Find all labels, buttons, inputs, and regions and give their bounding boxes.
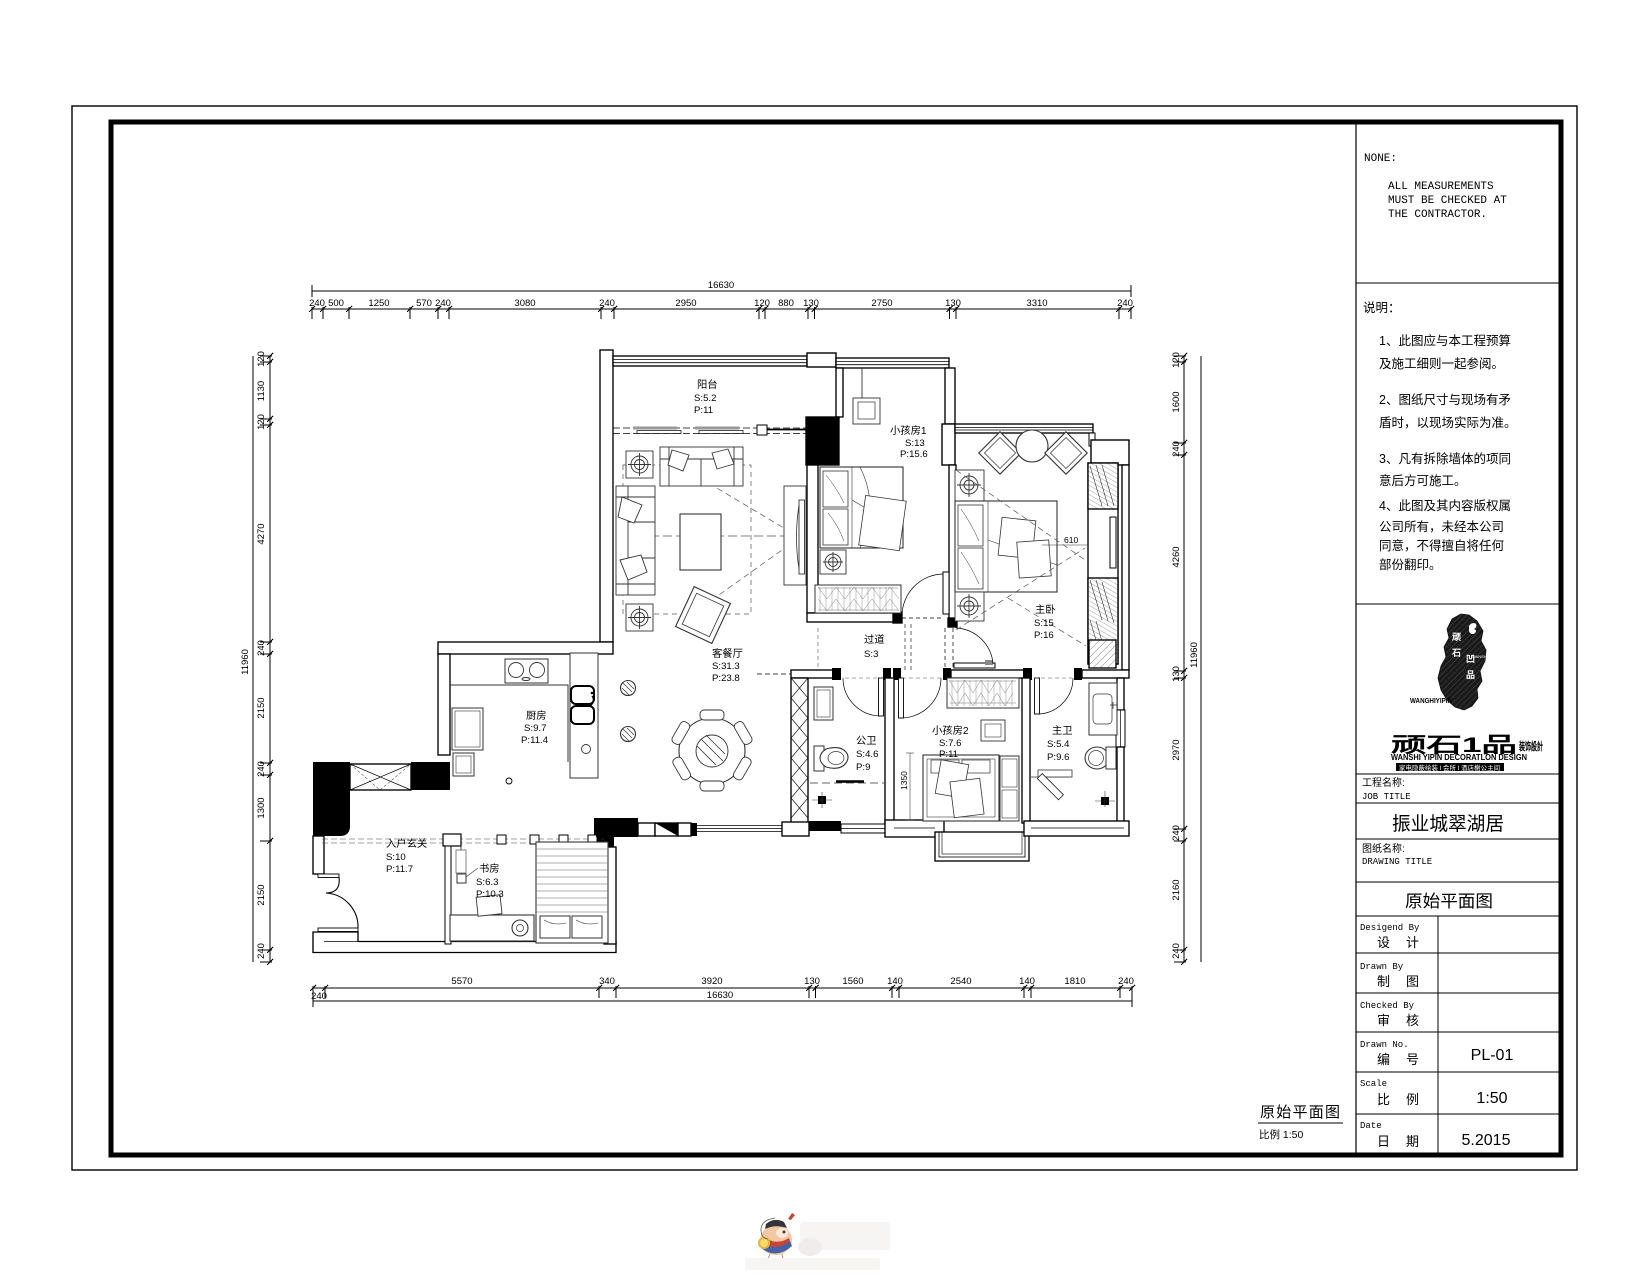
- svg-text:3、凡有拆除墙体的项同: 3、凡有拆除墙体的项同: [1379, 451, 1511, 466]
- svg-text:公卫: 公卫: [856, 735, 877, 747]
- svg-text:4260: 4260: [1171, 546, 1182, 567]
- svg-text:品: 品: [1466, 670, 1475, 680]
- svg-text:130: 130: [1171, 666, 1182, 682]
- svg-text:主卫: 主卫: [1052, 725, 1073, 737]
- svg-text:图纸名称:: 图纸名称:: [1362, 842, 1405, 855]
- svg-text:主卧: 主卧: [1035, 603, 1056, 616]
- svg-text:JOB TITLE: JOB TITLE: [1362, 792, 1411, 802]
- svg-text:4、此图及其内容版权属: 4、此图及其内容版权属: [1379, 498, 1511, 513]
- svg-text:制 图: 制 图: [1377, 974, 1419, 989]
- svg-text:P:9.6: P:9.6: [1047, 752, 1069, 763]
- svg-text:S:4.6: S:4.6: [856, 749, 878, 760]
- svg-text:140: 140: [887, 976, 903, 987]
- svg-text:240: 240: [311, 991, 327, 1002]
- svg-text:340: 340: [599, 976, 615, 987]
- svg-text:240: 240: [256, 943, 267, 959]
- svg-text:1300: 1300: [256, 797, 267, 818]
- svg-text:1350: 1350: [899, 771, 909, 790]
- svg-text:P:23.8: P:23.8: [712, 673, 740, 684]
- svg-text:原始平面图: 原始平面图: [1405, 892, 1493, 911]
- svg-text:3310: 3310: [1026, 298, 1047, 309]
- svg-text:石: 石: [1451, 648, 1461, 658]
- svg-text:MUST BE CHECKED AT: MUST BE CHECKED AT: [1388, 195, 1507, 207]
- svg-text:120: 120: [1171, 352, 1182, 368]
- svg-text:S:5.4: S:5.4: [1047, 739, 1070, 750]
- svg-text:1560: 1560: [842, 976, 863, 987]
- svg-text:4270: 4270: [256, 523, 267, 544]
- svg-text:1、此图应与本工程预算: 1、此图应与本工程预算: [1379, 333, 1511, 348]
- svg-text:S:15: S:15: [1034, 618, 1054, 629]
- svg-text:过道: 过道: [864, 633, 885, 646]
- svg-text:小孩房2: 小孩房2: [932, 724, 969, 737]
- svg-text:1250: 1250: [368, 298, 389, 309]
- svg-text:240: 240: [435, 298, 451, 309]
- svg-text:Drawn By: Drawn By: [1360, 962, 1404, 972]
- svg-text:S:7.6: S:7.6: [939, 738, 961, 749]
- svg-text:S:9.7: S:9.7: [524, 723, 546, 734]
- svg-text:Desigend By: Desigend By: [1360, 923, 1420, 933]
- svg-text:原始平面图: 原始平面图: [1260, 1104, 1340, 1121]
- svg-text:11960: 11960: [1189, 642, 1200, 668]
- svg-text:11960: 11960: [240, 649, 251, 675]
- svg-text:意后方可施工。: 意后方可施工。: [1379, 473, 1467, 488]
- svg-text:工程名称:: 工程名称:: [1362, 776, 1405, 789]
- svg-text:S:10: S:10: [386, 852, 406, 863]
- svg-text:S:31.3: S:31.3: [712, 661, 740, 672]
- svg-text:1810: 1810: [1064, 976, 1085, 987]
- svg-text:PL-01: PL-01: [1471, 1047, 1514, 1064]
- svg-text:THE CONTRACTOR.: THE CONTRACTOR.: [1388, 209, 1487, 221]
- svg-text:P:11.7: P:11.7: [386, 864, 413, 875]
- svg-text:同意，不得擅自将任何: 同意，不得擅自将任何: [1379, 538, 1505, 553]
- svg-text:P:16: P:16: [1034, 630, 1054, 641]
- svg-text:比例 1:50: 比例 1:50: [1259, 1128, 1304, 1141]
- svg-text:客餐厅: 客餐厅: [712, 647, 743, 660]
- svg-text:审 核: 审 核: [1377, 1013, 1419, 1028]
- svg-text:5.2015: 5.2015: [1462, 1132, 1511, 1149]
- svg-text:2970: 2970: [1171, 739, 1182, 760]
- svg-text:1130: 1130: [256, 381, 267, 401]
- svg-text:2150: 2150: [256, 884, 267, 905]
- svg-text:ALL MEASUREMENTS: ALL MEASUREMENTS: [1388, 181, 1494, 193]
- svg-text:130: 130: [803, 298, 819, 309]
- svg-text:Drawn No.: Drawn No.: [1360, 1040, 1409, 1050]
- svg-text:说明：: 说明：: [1363, 300, 1401, 315]
- svg-text:16630: 16630: [707, 990, 733, 1001]
- svg-text:部份翻印。: 部份翻印。: [1379, 557, 1442, 572]
- svg-text:610: 610: [1064, 535, 1078, 545]
- svg-text:比 例: 比 例: [1377, 1092, 1419, 1107]
- svg-text:570: 570: [416, 298, 432, 309]
- svg-text:S:5.2: S:5.2: [694, 393, 716, 404]
- svg-text:P:11: P:11: [939, 749, 958, 760]
- svg-text:S:6.3: S:6.3: [476, 877, 498, 888]
- svg-text:入户玄关: 入户玄关: [386, 837, 427, 850]
- svg-text:顽: 顽: [1452, 632, 1461, 642]
- svg-text:P:15.6: P:15.6: [900, 449, 928, 460]
- svg-text:P:11.4: P:11.4: [521, 735, 549, 746]
- svg-text:16630: 16630: [708, 280, 734, 291]
- svg-text:家电隐蔽绘装 l 会所 l 酒店榭公主间: 家电隐蔽绘装 l 会所 l 酒店榭公主间: [1399, 763, 1500, 772]
- svg-text:120: 120: [754, 298, 770, 309]
- svg-text:Checked By: Checked By: [1360, 1001, 1415, 1011]
- svg-text:240: 240: [1117, 298, 1133, 309]
- svg-text:Date: Date: [1360, 1121, 1382, 1131]
- svg-text:2150: 2150: [256, 697, 267, 718]
- svg-text:240: 240: [256, 640, 267, 656]
- svg-text:盾时，以现场实际为准。: 盾时，以现场实际为准。: [1379, 415, 1517, 430]
- svg-text:振业城翠湖居: 振业城翠湖居: [1392, 813, 1504, 835]
- svg-text:500: 500: [328, 298, 344, 309]
- svg-text:小孩房1: 小孩房1: [890, 424, 927, 437]
- svg-text:240: 240: [256, 761, 267, 777]
- svg-text:120: 120: [256, 414, 267, 430]
- svg-text:130: 130: [804, 976, 820, 987]
- svg-text:DRAWING TITLE: DRAWING TITLE: [1362, 857, 1432, 867]
- svg-text:厨房: 厨房: [526, 709, 547, 722]
- svg-text:1:50: 1:50: [1476, 1090, 1507, 1107]
- svg-text:2950: 2950: [675, 298, 696, 309]
- svg-text:S:13: S:13: [905, 438, 925, 449]
- svg-text:书房: 书房: [479, 862, 500, 875]
- svg-text:5570: 5570: [451, 976, 472, 987]
- svg-text:P:9: P:9: [856, 762, 870, 773]
- svg-text:2160: 2160: [1171, 879, 1182, 900]
- svg-text:2750: 2750: [871, 298, 892, 309]
- svg-text:240: 240: [1171, 441, 1182, 457]
- svg-text:日 期: 日 期: [1377, 1134, 1419, 1149]
- svg-text:NONE:: NONE:: [1364, 153, 1397, 165]
- svg-text:120: 120: [256, 351, 267, 367]
- svg-text:2540: 2540: [950, 976, 971, 987]
- svg-text:编 号: 编 号: [1377, 1052, 1419, 1067]
- svg-text:及施工细则一起参阅。: 及施工细则一起参阅。: [1379, 356, 1504, 371]
- svg-text:130: 130: [945, 298, 961, 309]
- svg-text:装饰設計: 装饰設計: [1518, 739, 1543, 753]
- svg-text:阳台: 阳台: [697, 378, 718, 391]
- svg-text:2、图纸尺寸与现场有矛: 2、图纸尺寸与现场有矛: [1379, 393, 1511, 407]
- svg-text:WANSHI: WANSHI: [1472, 654, 1488, 659]
- svg-text:公司所有，未经本公司: 公司所有，未经本公司: [1379, 520, 1504, 534]
- svg-text:140: 140: [1019, 976, 1035, 987]
- svg-text:1600: 1600: [1171, 391, 1182, 412]
- svg-text:3920: 3920: [701, 976, 722, 987]
- svg-text:880: 880: [778, 298, 794, 309]
- svg-text:S:3: S:3: [864, 649, 878, 660]
- svg-text:设 计: 设 计: [1377, 935, 1419, 950]
- svg-text:240: 240: [1171, 943, 1182, 959]
- svg-text:240: 240: [309, 298, 325, 309]
- svg-text:240: 240: [1118, 976, 1134, 987]
- svg-text:P:11: P:11: [694, 405, 713, 416]
- svg-text:240: 240: [1171, 825, 1182, 841]
- svg-text:P:10.3: P:10.3: [476, 889, 504, 900]
- svg-text:WANGHIYIPIN: WANGHIYIPIN: [1410, 698, 1452, 705]
- svg-text:240: 240: [599, 298, 615, 309]
- svg-text:WANSHI YIPIN DECORATLON DESIGN: WANSHI YIPIN DECORATLON DESIGN: [1391, 752, 1527, 762]
- svg-text:Scale: Scale: [1360, 1079, 1387, 1089]
- svg-text:3080: 3080: [514, 298, 535, 309]
